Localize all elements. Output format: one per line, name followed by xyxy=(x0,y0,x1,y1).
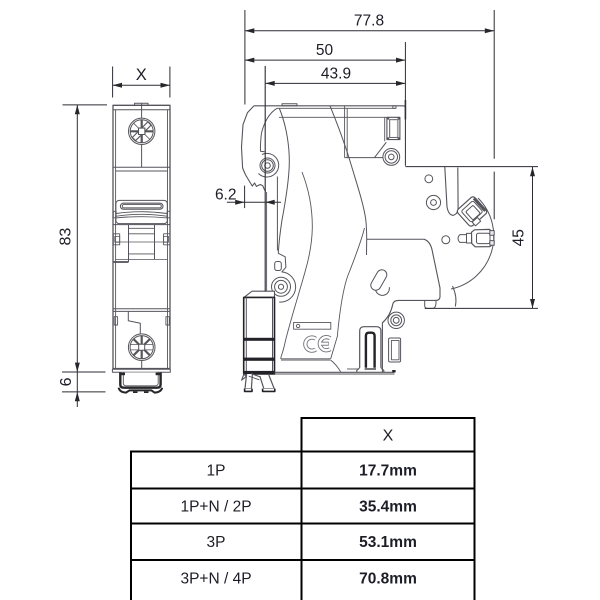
svg-text:83: 83 xyxy=(58,228,75,246)
svg-text:50: 50 xyxy=(316,42,334,59)
svg-text:6: 6 xyxy=(58,377,75,386)
svg-text:35.4mm: 35.4mm xyxy=(359,499,417,516)
svg-text:6.2: 6.2 xyxy=(215,187,237,204)
svg-text:53.1mm: 53.1mm xyxy=(359,534,417,551)
svg-text:1P+N / 2P: 1P+N / 2P xyxy=(180,499,251,516)
svg-text:70.8mm: 70.8mm xyxy=(359,571,417,588)
svg-text:X: X xyxy=(136,66,147,84)
svg-text:3P+N / 4P: 3P+N / 4P xyxy=(180,571,251,588)
svg-text:45: 45 xyxy=(511,229,528,246)
svg-text:17.7mm: 17.7mm xyxy=(359,463,417,480)
svg-text:77.8: 77.8 xyxy=(354,13,384,30)
svg-text:X: X xyxy=(383,428,394,445)
svg-text:1P: 1P xyxy=(207,463,226,480)
svg-text:43.9: 43.9 xyxy=(321,65,351,82)
svg-text:3P: 3P xyxy=(207,534,226,551)
